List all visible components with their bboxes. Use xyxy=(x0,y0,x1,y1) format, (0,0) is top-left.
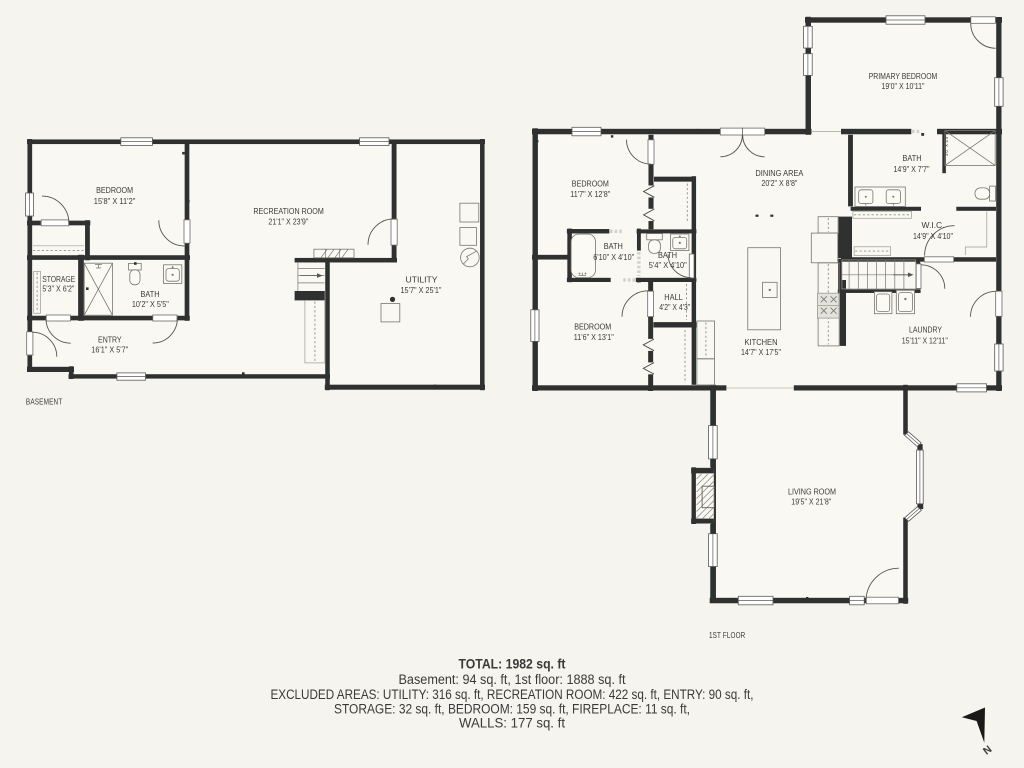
svg-text:5'4" X 4'10": 5'4" X 4'10" xyxy=(649,261,687,270)
svg-text:STORAGE: STORAGE xyxy=(42,275,75,284)
svg-text:Basement: 94 sq. ft, 1st floor: Basement: 94 sq. ft, 1st floor: 1888 sq.… xyxy=(399,672,626,687)
svg-text:UTILITY: UTILITY xyxy=(406,275,439,284)
svg-text:DINING AREA: DINING AREA xyxy=(755,169,803,178)
svg-text:14'9" X 7'7": 14'9" X 7'7" xyxy=(894,165,930,174)
svg-text:14'9" X 4'10": 14'9" X 4'10" xyxy=(913,232,953,241)
svg-text:21'1" X 23'9": 21'1" X 23'9" xyxy=(268,217,308,226)
svg-text:11'7" X 12'8": 11'7" X 12'8" xyxy=(570,190,610,199)
svg-text:19'5" X 21'8": 19'5" X 21'8" xyxy=(791,498,831,507)
svg-text:19'0" X 10'11": 19'0" X 10'11" xyxy=(882,82,925,91)
svg-text:HALL: HALL xyxy=(664,293,683,302)
svg-text:BEDROOM: BEDROOM xyxy=(96,186,133,195)
svg-text:1ST FLOOR: 1ST FLOOR xyxy=(709,630,745,640)
svg-text:15'8" X 11'2": 15'8" X 11'2" xyxy=(94,197,136,206)
svg-text:6'10" X 4'10": 6'10" X 4'10" xyxy=(593,253,634,262)
svg-text:14'7" X 17'5": 14'7" X 17'5" xyxy=(741,348,781,357)
svg-text:KITCHEN: KITCHEN xyxy=(745,338,778,347)
svg-text:BATH: BATH xyxy=(604,242,623,251)
svg-text:BATH: BATH xyxy=(658,251,677,260)
svg-text:BASEMENT: BASEMENT xyxy=(26,397,63,407)
svg-text:11'6" X 13'1": 11'6" X 13'1" xyxy=(574,333,614,342)
svg-text:STORAGE: 32 sq. ft, BEDROOM: 1: STORAGE: 32 sq. ft, BEDROOM: 159 sq. ft,… xyxy=(334,702,690,717)
svg-text:W.I.C.: W.I.C. xyxy=(922,221,945,230)
svg-text:PRIMARY BEDROOM: PRIMARY BEDROOM xyxy=(869,72,938,81)
svg-text:BATH: BATH xyxy=(141,290,160,299)
svg-text:10'2" X 5'5": 10'2" X 5'5" xyxy=(132,300,169,309)
svg-text:15'7" X 25'1": 15'7" X 25'1" xyxy=(401,286,442,295)
svg-text:RECREATION ROOM: RECREATION ROOM xyxy=(253,207,324,216)
svg-text:LIVING ROOM: LIVING ROOM xyxy=(788,488,836,497)
svg-text:LAUNDRY: LAUNDRY xyxy=(909,325,942,334)
svg-text:3'0" X 4'9": 3'0" X 4'9" xyxy=(944,135,949,156)
svg-text:16'1" X 5'7": 16'1" X 5'7" xyxy=(91,346,128,355)
svg-text:EXCLUDED AREAS: UTILITY: 316 s: EXCLUDED AREAS: UTILITY: 316 sq. ft, REC… xyxy=(271,687,754,702)
svg-text:ENTRY: ENTRY xyxy=(98,336,122,345)
svg-text:15'11" X 12'11": 15'11" X 12'11" xyxy=(902,337,948,346)
svg-text:20'2" X 8'8": 20'2" X 8'8" xyxy=(761,179,797,188)
svg-text:4'2" X 4'3": 4'2" X 4'3" xyxy=(659,303,690,312)
svg-text:5'3" X 6'2": 5'3" X 6'2" xyxy=(42,285,74,294)
svg-text:BATH: BATH xyxy=(903,154,922,163)
svg-text:TOTAL: 1982 sq. ft: TOTAL: 1982 sq. ft xyxy=(459,655,566,671)
svg-text:BEDROOM: BEDROOM xyxy=(574,322,611,331)
svg-text:BEDROOM: BEDROOM xyxy=(572,179,609,188)
svg-text:WALLS: 177 sq. ft: WALLS: 177 sq. ft xyxy=(459,716,565,731)
